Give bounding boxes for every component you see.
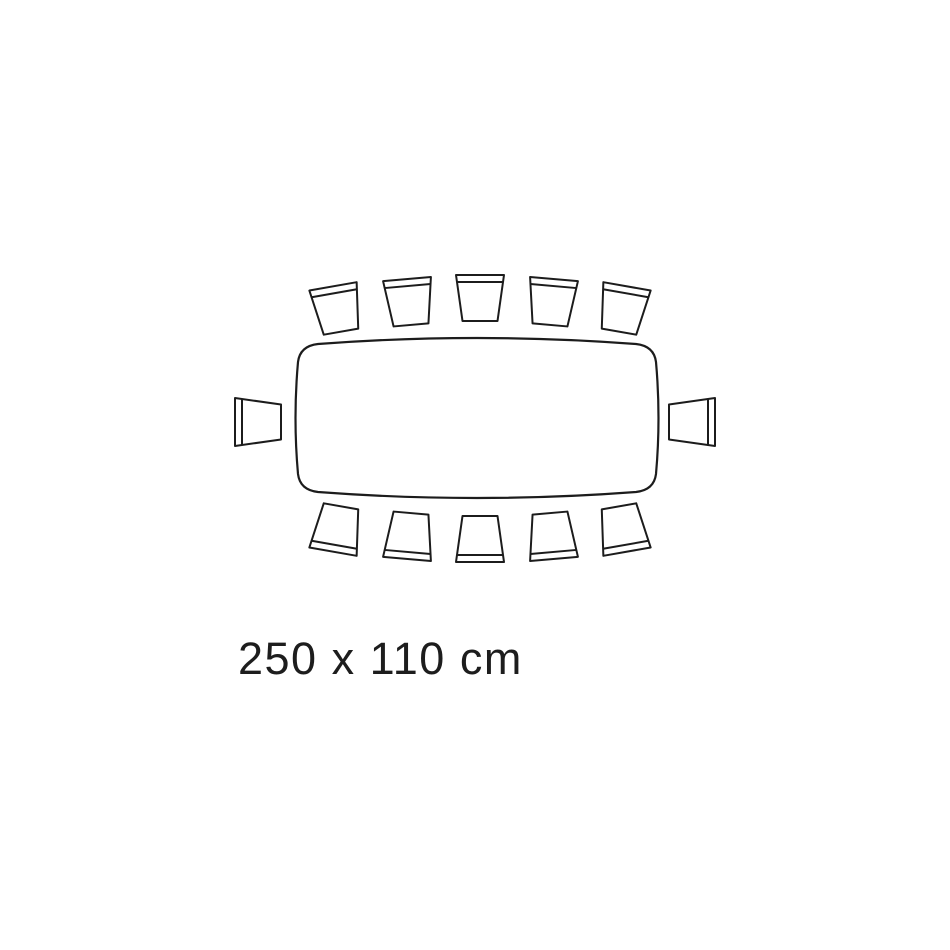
seating-diagram: 250 x 110 cm	[0, 0, 950, 950]
chair-right-1	[667, 396, 717, 448]
chair-bottom-2	[380, 509, 436, 563]
chair-bottom-1	[307, 500, 367, 558]
chair-top-3	[454, 273, 506, 323]
table-top-path	[296, 338, 659, 498]
chair-bottom-4	[523, 509, 579, 563]
table-outline	[292, 332, 662, 504]
chair-left-1	[233, 396, 283, 448]
chair-top-4	[523, 275, 579, 329]
chair-bottom-3	[454, 514, 506, 564]
chair-top-5	[593, 280, 653, 338]
chair-top-1	[307, 280, 367, 338]
chair-bottom-5	[593, 500, 653, 558]
chair-top-2	[380, 275, 436, 329]
dimensions-label: 250 x 110 cm	[238, 633, 523, 685]
